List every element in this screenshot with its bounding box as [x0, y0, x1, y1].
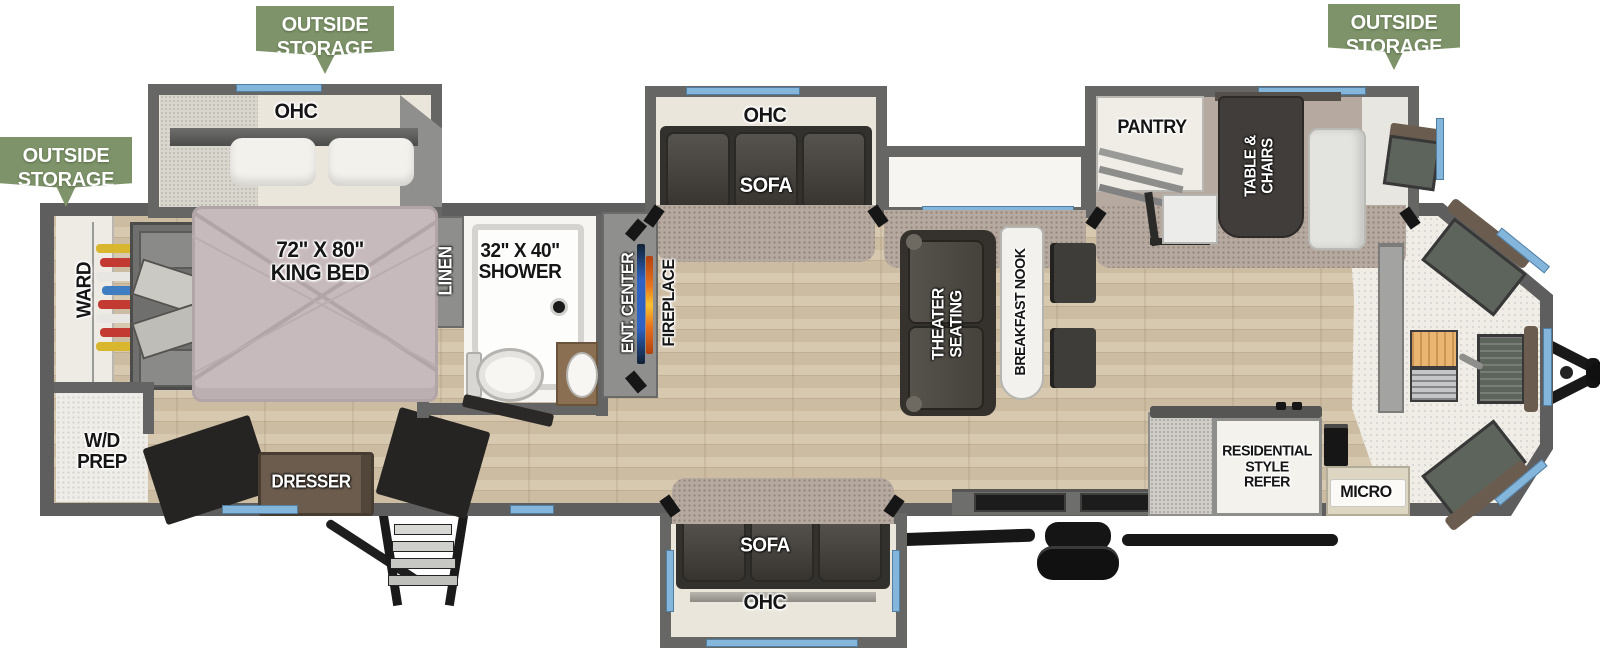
window [1543, 328, 1552, 406]
kitchen-sink-cover [974, 493, 1066, 512]
cutting-board [1410, 330, 1458, 368]
interior-wall [143, 382, 154, 434]
label-sofa-bottom: SOFA [740, 536, 790, 557]
window [666, 550, 674, 612]
kitchen-sink [1410, 368, 1458, 402]
sofa-cushion [682, 516, 746, 582]
carpet-sofa-top [657, 205, 875, 262]
sofa-cushion [818, 516, 882, 582]
sofa-cushion [802, 132, 866, 210]
label-fireplace: FIREPLACE [660, 259, 678, 346]
shower-drain-icon [550, 298, 568, 316]
bathroom-sink [566, 352, 598, 398]
cupholder-icon [906, 396, 922, 412]
faucet-icon [1276, 402, 1286, 410]
label-ohc-sofa-top: OHC [744, 105, 787, 127]
cupholder-icon [906, 234, 922, 250]
label-micro: MICRO [1340, 483, 1391, 501]
outside-storage-banner: OUTSIDE STORAGE [0, 137, 132, 207]
label-pantry: PANTRY [1117, 118, 1186, 138]
entry-stairs-step [388, 575, 458, 586]
dinette-side-window [1383, 135, 1441, 192]
nook-chair [1050, 243, 1096, 303]
fireplace [646, 256, 653, 354]
label-breakfast-nook: BREAKFAST NOOK [1013, 248, 1029, 375]
sofa-cushion [666, 132, 730, 210]
window [686, 87, 800, 95]
window [510, 505, 554, 514]
label-ohc-bedroom: OHC [275, 101, 318, 123]
nook-chair [1050, 328, 1096, 388]
kitchen-tall-cabinet [1378, 243, 1404, 413]
window [236, 84, 322, 92]
entry-stairs-step [392, 541, 454, 552]
carpet-sofa-bottom [672, 478, 894, 524]
tv [637, 244, 645, 364]
label-king-bed: 72" X 80" KING BED [271, 239, 369, 285]
bed-pillow [328, 138, 414, 186]
rv-floorplan: OHC 72" X 80" KING BED WARD W/D PREP DRE… [0, 0, 1600, 651]
dinette-bench [1308, 128, 1366, 250]
label-shower: 32" X 40" SHOWER [479, 241, 562, 283]
window [222, 505, 298, 514]
window [706, 639, 858, 647]
awning-rail [1122, 534, 1338, 546]
label-linen: LINEN [437, 247, 456, 296]
label-ward: WARD [75, 262, 96, 318]
label-table-chairs: TABLE & CHAIRS [1243, 135, 1276, 196]
kitchen-island [1148, 412, 1214, 516]
hitch-jack [1560, 366, 1573, 379]
range [1324, 424, 1348, 466]
window [892, 550, 900, 612]
label-dresser: DRESSER [271, 473, 350, 492]
king-bed [192, 206, 438, 402]
label-ent-center: ENT. CENTER [619, 253, 637, 354]
label-ohc-sofa-bottom: OHC [744, 592, 787, 614]
window [1436, 118, 1444, 180]
label-wd-prep: W/D PREP [77, 431, 127, 473]
front-window [1477, 334, 1525, 404]
bed-pillow [230, 138, 316, 186]
label-sofa-top: SOFA [740, 175, 792, 197]
entry-stairs-step [394, 524, 452, 535]
entry-stairs-step [390, 558, 456, 569]
outside-storage-banner: OUTSIDE STORAGE [1328, 4, 1460, 70]
sofa-cushion [734, 132, 798, 210]
label-theater: THEATER SEATING [929, 288, 964, 360]
entry-step [1037, 546, 1119, 580]
toilet-bowl [476, 348, 544, 402]
dinette-chair-seat [1162, 194, 1218, 244]
interior-wall [54, 382, 154, 393]
awning-rail [893, 529, 1035, 547]
window-valance [1524, 326, 1538, 412]
faucet-icon [1292, 402, 1302, 410]
outside-storage-banner: OUTSIDE STORAGE [256, 6, 394, 74]
label-refer: RESIDENTIAL STYLE REFER [1222, 444, 1312, 491]
